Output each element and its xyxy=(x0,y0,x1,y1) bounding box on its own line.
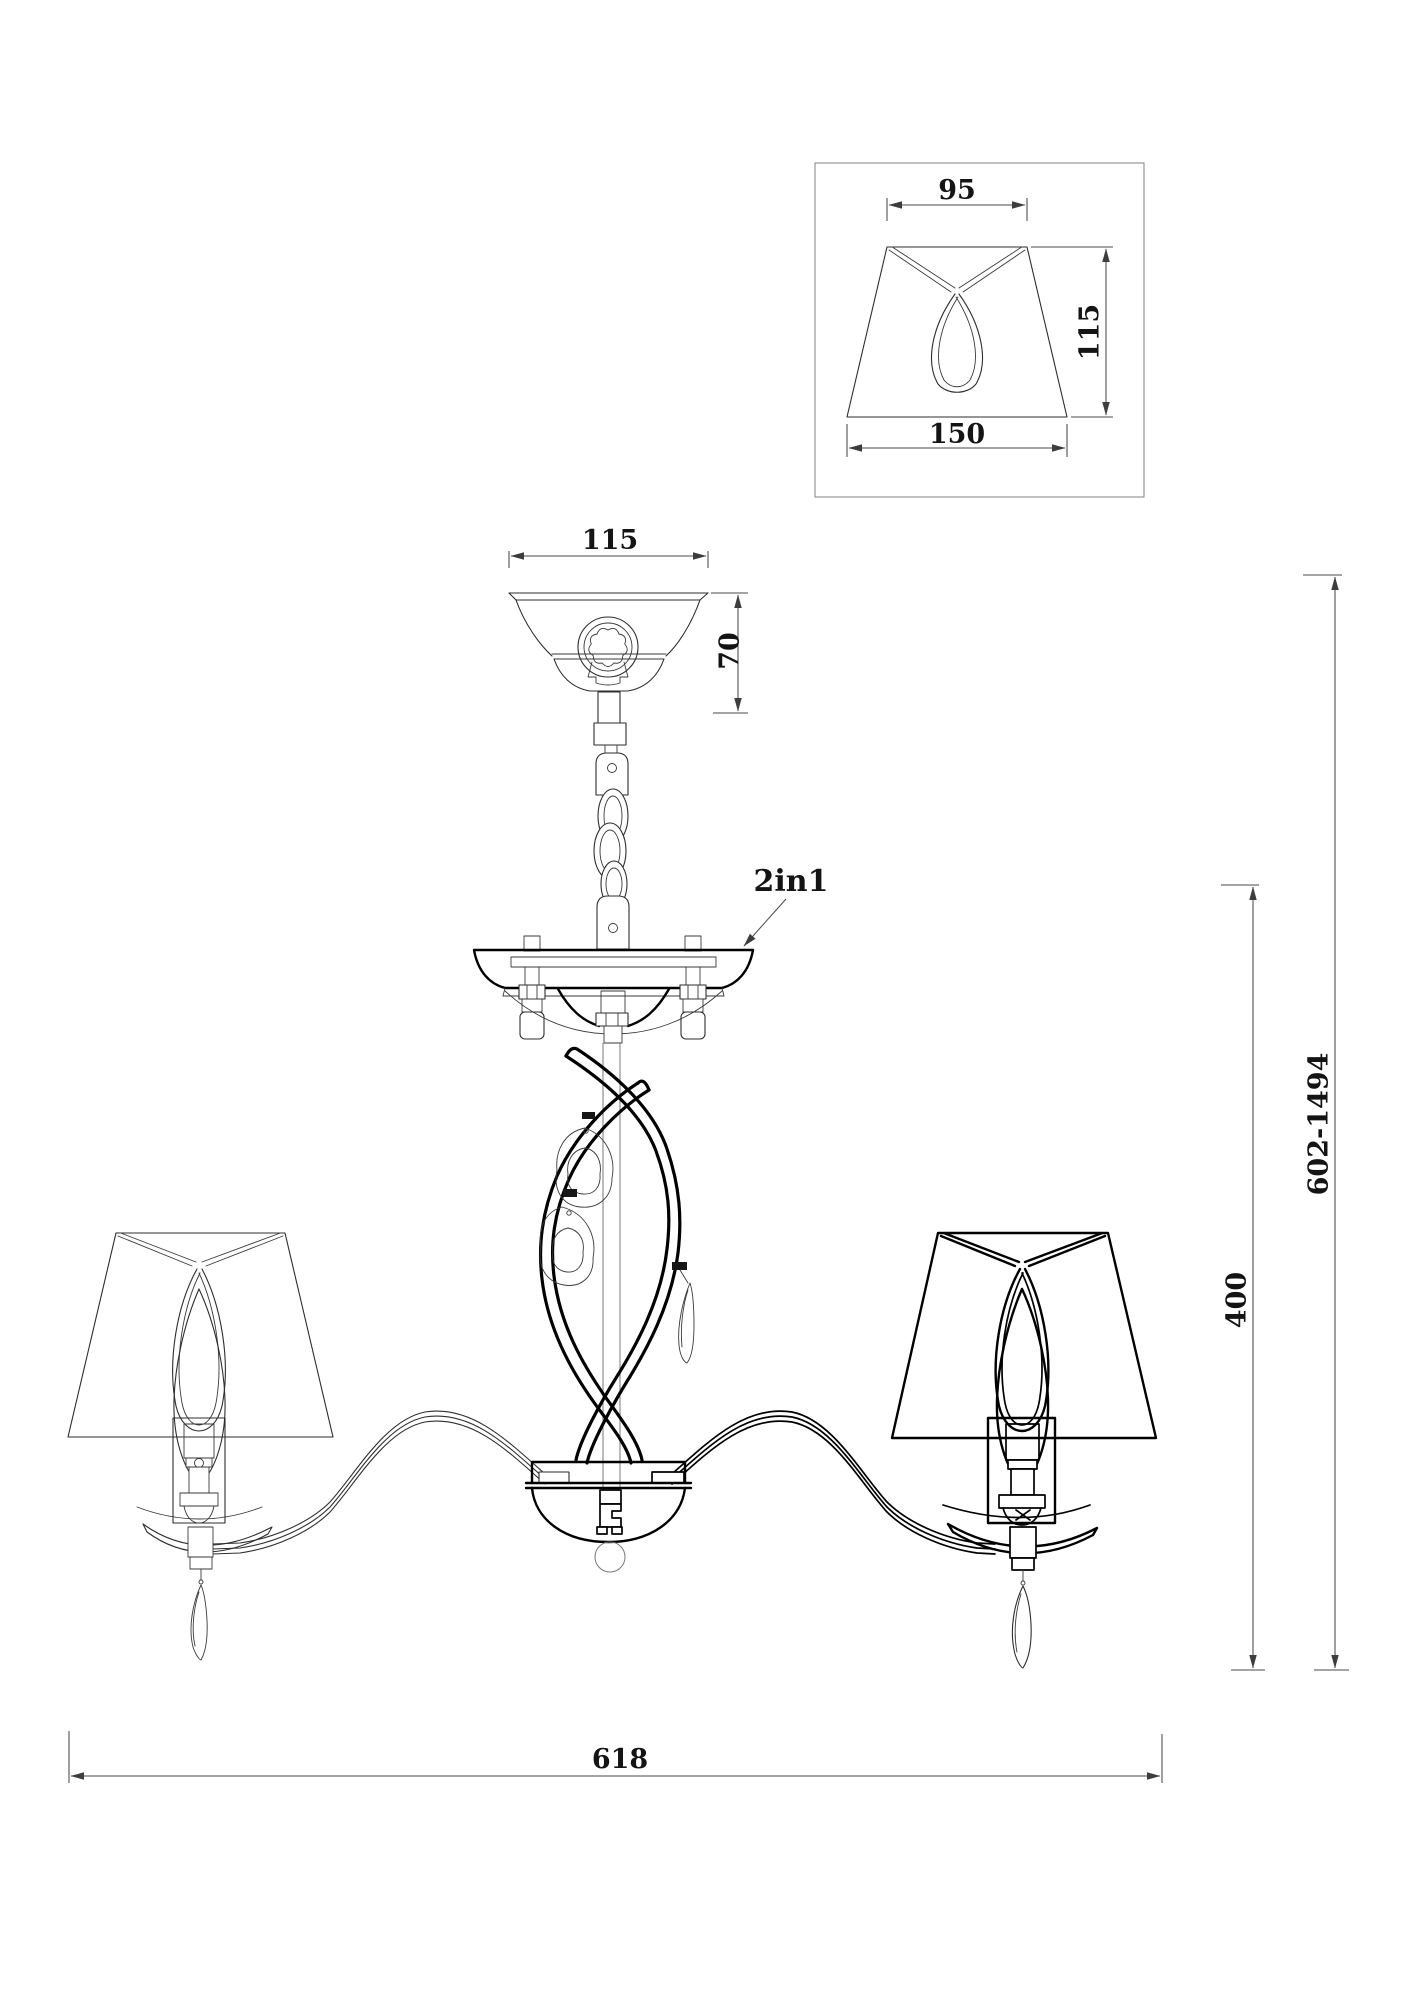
detail-shade-drape xyxy=(889,248,1025,293)
mount-leader: 2in1 xyxy=(744,864,828,946)
left-socket-collar xyxy=(186,1458,212,1467)
hub-nut xyxy=(600,1490,621,1504)
body-height-value: 400 xyxy=(1221,1272,1252,1328)
hub-bracket xyxy=(600,1504,621,1527)
overall-dimensions: 618 400 602-1494 xyxy=(69,575,1349,1783)
center-collar xyxy=(604,1026,622,1043)
left-arm xyxy=(212,1411,545,1554)
right-boss-collar xyxy=(1012,1558,1034,1570)
detail-top-width-value: 95 xyxy=(938,175,976,206)
right-boss xyxy=(1010,1527,1036,1558)
detail-bottom-width-value: 150 xyxy=(929,419,985,450)
detail-dim-top-width: 95 xyxy=(887,175,1027,221)
leaf-outline xyxy=(540,1207,594,1285)
left-shade-drape xyxy=(118,1234,283,1267)
ribbon-clip xyxy=(563,1189,577,1197)
screw-shank xyxy=(525,967,539,986)
right-bulb-base-threads xyxy=(1006,1424,1039,1460)
center-stud-threads xyxy=(601,991,625,1013)
left-lamp xyxy=(68,1233,333,1660)
canopy-width-value: 115 xyxy=(582,525,638,556)
twist-ornament xyxy=(541,1048,680,1463)
right-socket-band xyxy=(999,1495,1045,1508)
plate-screw-left xyxy=(519,967,545,1039)
right-drop-bead xyxy=(1021,1581,1025,1585)
detail-dim-side-height: 115 xyxy=(1031,247,1113,417)
leaf-pin xyxy=(567,1211,571,1215)
hub-foot xyxy=(597,1527,607,1534)
plate-dish-outline xyxy=(474,950,753,988)
mounting-bar xyxy=(511,957,716,967)
left-candle-bulb xyxy=(174,1289,225,1477)
right-lamp xyxy=(892,1233,1156,1668)
center-column xyxy=(540,1043,694,1487)
dim-overall-height-range: 602-1494 xyxy=(1303,575,1349,1670)
knurled-ring xyxy=(522,999,542,1012)
canopy-dim-width: 115 xyxy=(509,525,708,568)
left-boss xyxy=(188,1527,213,1557)
left-crystal-facet xyxy=(193,1592,199,1646)
right-socket-bowtie xyxy=(1016,1510,1030,1520)
screw-shank xyxy=(686,967,700,986)
leader-line xyxy=(744,899,786,946)
arm-line xyxy=(212,1421,545,1554)
canopy-ring-outer xyxy=(578,617,638,677)
canopy-assembly: 115 70 xyxy=(509,525,748,949)
left-drop-bead xyxy=(199,1580,203,1584)
ceiling-plate-2in1: 2in1 xyxy=(474,864,828,1043)
plate-screw-right xyxy=(680,967,706,1039)
canopy-seam xyxy=(552,654,666,659)
mount-label: 2in1 xyxy=(754,864,829,899)
leaf-mesh xyxy=(553,1228,584,1272)
hub-lug-right xyxy=(652,1472,684,1483)
right-shade-drape xyxy=(941,1234,1105,1267)
dim-body-height: 400 xyxy=(1221,885,1265,1670)
canopy-dim-height: 70 xyxy=(711,593,748,713)
canopy-bell-bottom xyxy=(554,659,664,691)
chain-connector-bottom xyxy=(597,896,629,949)
arm-line xyxy=(212,1416,545,1549)
hub-foot xyxy=(612,1527,622,1534)
ribbon-clip xyxy=(582,1112,595,1119)
left-bulb-base-threads xyxy=(184,1424,214,1458)
left-boss-collar xyxy=(190,1557,212,1569)
canopy-bell-sides xyxy=(516,600,700,656)
arm-line xyxy=(672,1411,995,1544)
canopy-nut xyxy=(594,723,626,745)
stem-lines xyxy=(605,745,617,753)
center-crystal-drop xyxy=(679,1270,694,1363)
detail-shade-outline xyxy=(847,247,1067,417)
chandelier-dimension-drawing: 95 115 150 115 70 xyxy=(0,0,1413,2000)
left-socket-dome xyxy=(184,1506,214,1523)
right-socket-collar xyxy=(1008,1460,1037,1469)
shade-detail-view: 95 115 150 xyxy=(815,163,1144,497)
chain xyxy=(594,789,628,907)
left-shade-outline xyxy=(68,1233,333,1437)
drop-wire xyxy=(680,1270,688,1283)
detail-side-height-value: 115 xyxy=(1074,304,1105,360)
canopy-neck xyxy=(598,692,620,723)
plate-stud xyxy=(685,936,701,951)
right-shade-outline xyxy=(892,1233,1156,1438)
right-arm xyxy=(672,1411,995,1554)
canopy-height-value: 70 xyxy=(714,632,745,670)
hub-ball-finial xyxy=(595,1542,625,1572)
left-socket-band xyxy=(180,1493,218,1506)
hex-nut xyxy=(680,985,706,999)
total-width-value: 618 xyxy=(592,1744,648,1775)
ribbon-tip xyxy=(566,1048,577,1056)
knurled-ring xyxy=(683,999,703,1012)
hex-nut xyxy=(519,985,545,999)
canopy-flange xyxy=(509,593,708,600)
center-nut xyxy=(596,1013,628,1026)
plate-stud xyxy=(524,936,540,951)
hub-lug-left xyxy=(539,1472,569,1483)
thumb-nut xyxy=(681,1012,705,1039)
arm-line xyxy=(212,1411,545,1544)
detail-dim-bottom-width: 150 xyxy=(847,419,1067,457)
right-socket-body xyxy=(1011,1469,1034,1495)
right-candle-bulb xyxy=(997,1289,1048,1477)
ribbon-tip xyxy=(638,1081,649,1090)
dim-total-width: 618 xyxy=(69,1731,1162,1783)
hub-band xyxy=(526,1483,691,1488)
overall-height-range-value: 602-1494 xyxy=(1303,1053,1334,1196)
decor-leaf-bottom xyxy=(540,1207,594,1285)
center-hub xyxy=(526,1462,691,1572)
canopy-ring-scallop xyxy=(589,628,627,666)
left-bobeche-rim xyxy=(137,1507,262,1519)
left-socket-body xyxy=(189,1467,209,1493)
ribbon-clip xyxy=(672,1262,687,1270)
